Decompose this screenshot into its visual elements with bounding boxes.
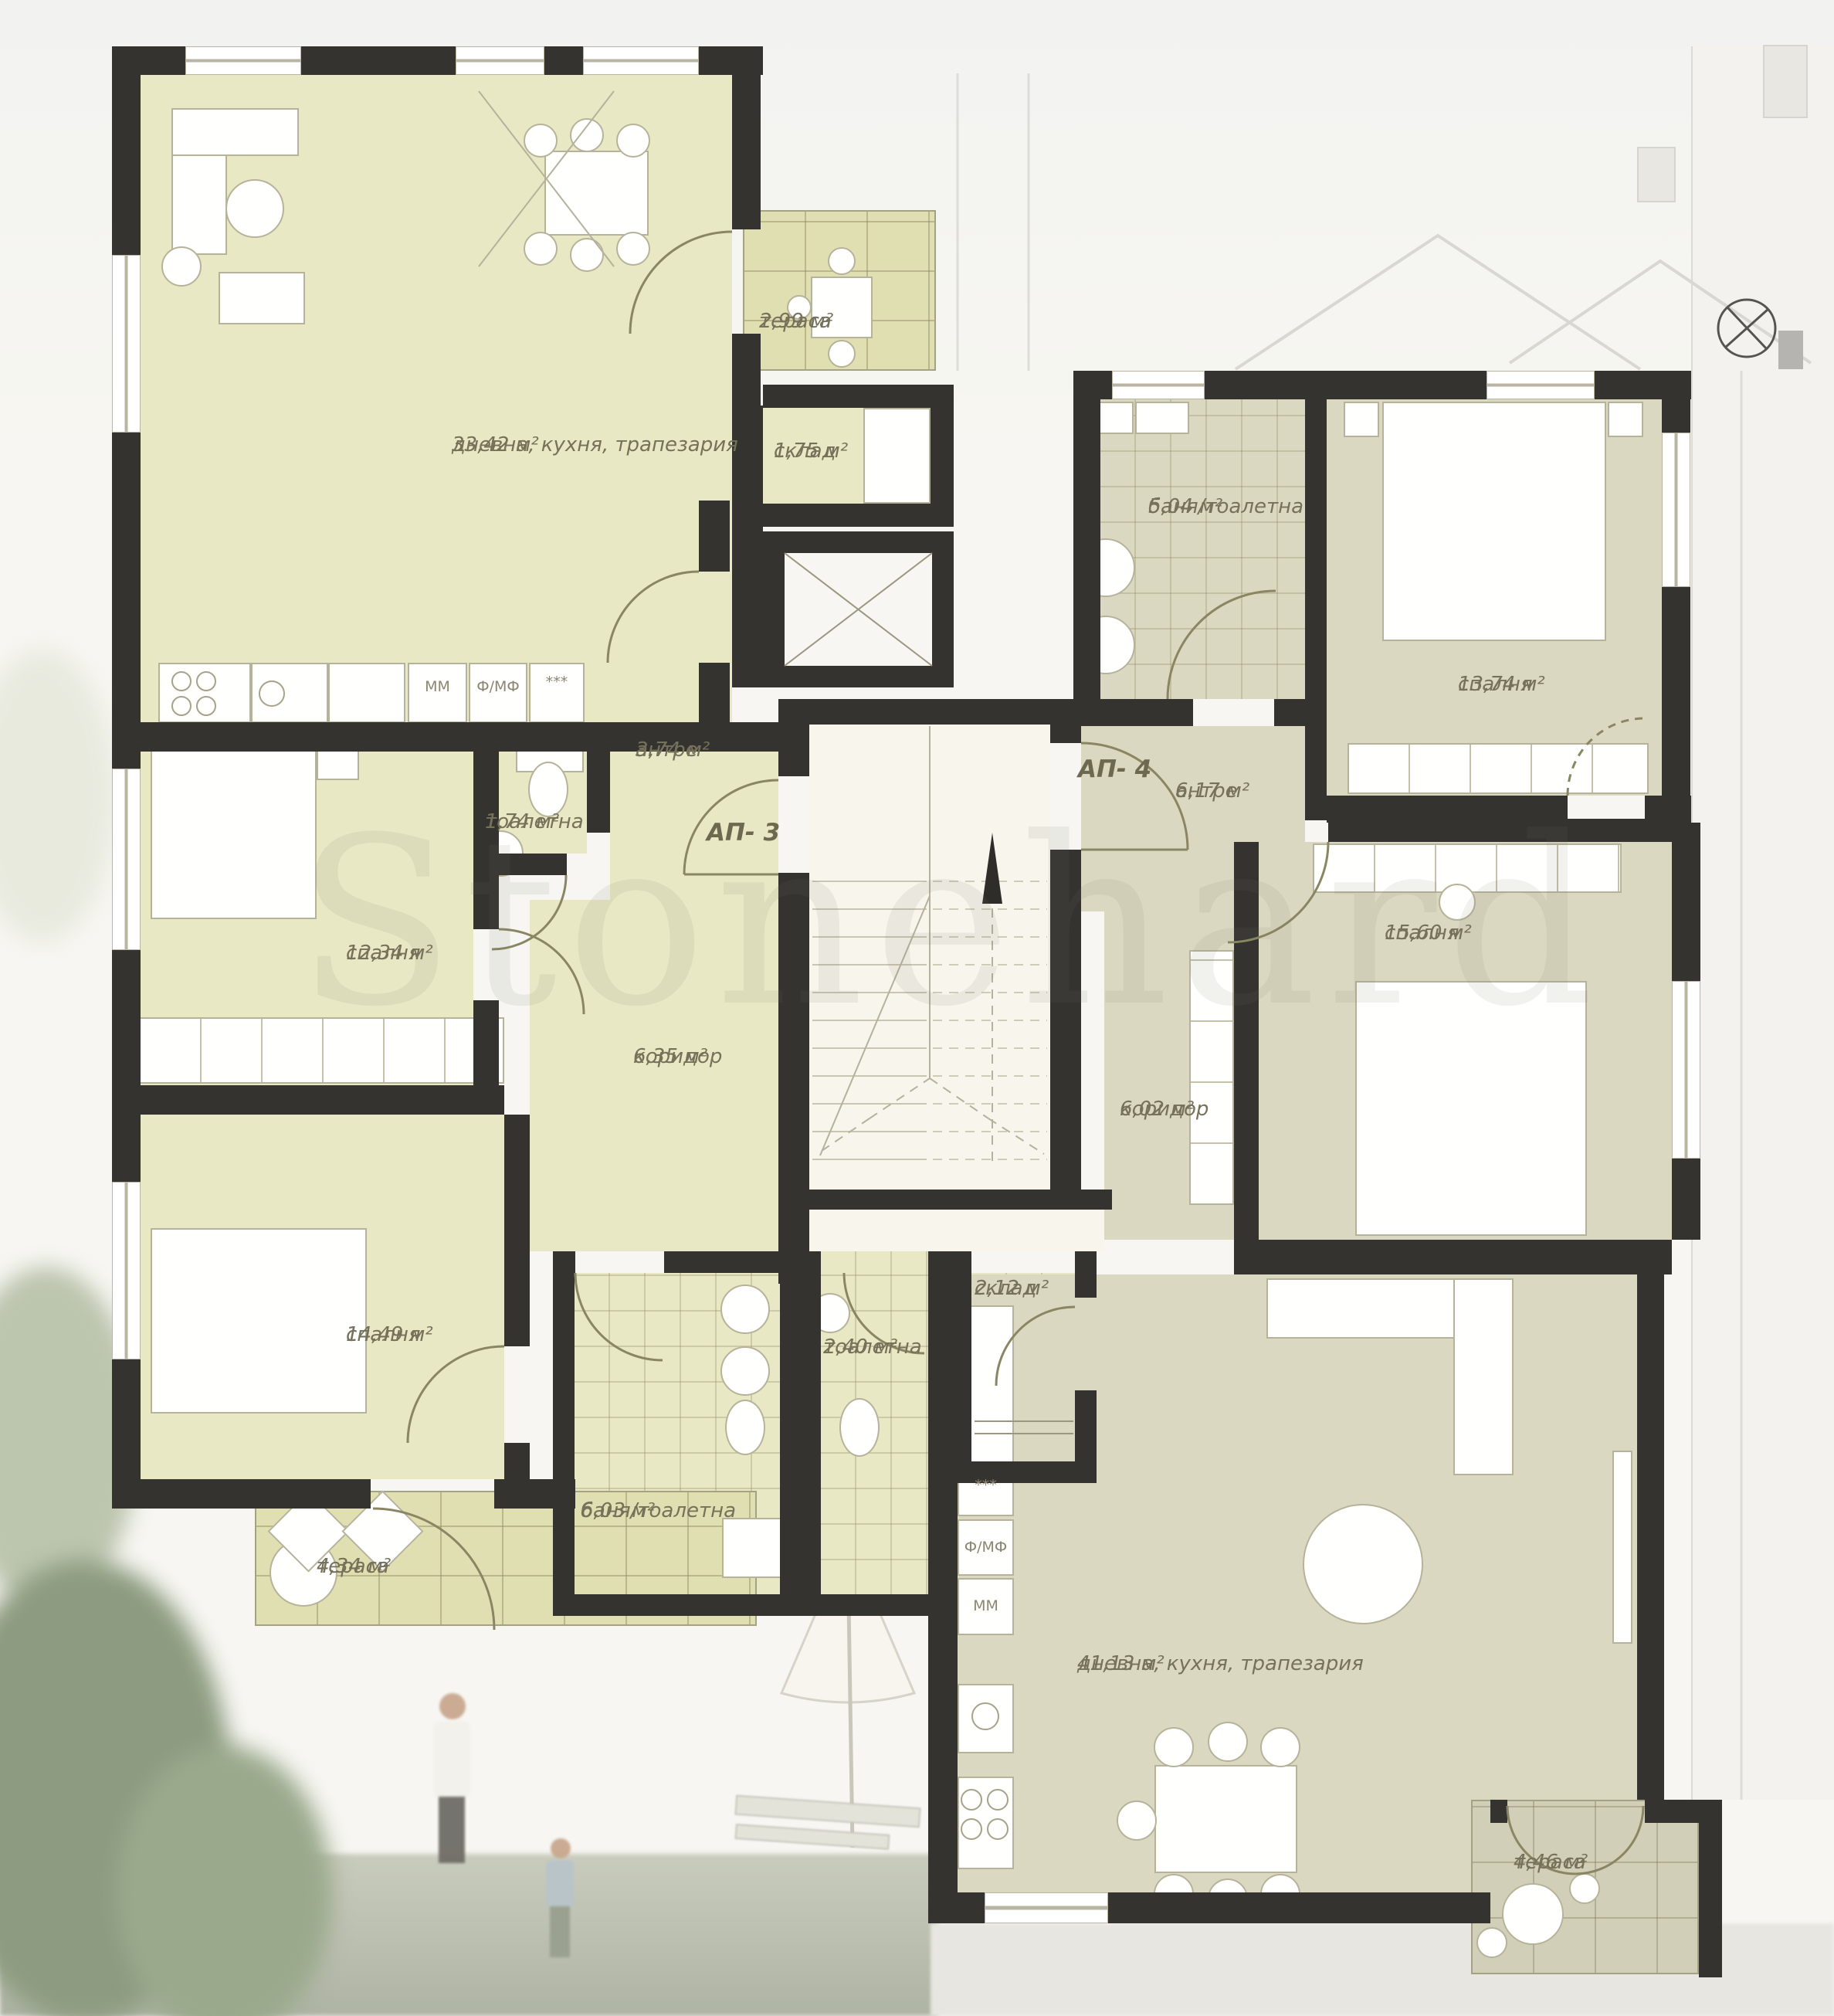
wardrobe-cross-icon xyxy=(479,91,614,266)
elevator-x-icon xyxy=(785,553,932,666)
plan-symbols xyxy=(0,0,1834,2016)
kitchen-appliance-label: ММ xyxy=(958,1597,1014,1614)
kitchen-appliance-label: Ф/МФ xyxy=(469,678,527,695)
staircase-treads xyxy=(812,726,1047,1161)
up-arrow-icon xyxy=(982,833,1002,904)
apartment-label-ap3: АП- 3 xyxy=(707,819,780,847)
apartment-label-ap4: АП- 4 xyxy=(1078,755,1151,783)
kitchen-appliance-label: Ф/МФ xyxy=(958,1539,1014,1556)
kitchen-appliance-label: *** xyxy=(529,674,585,691)
storage-shelf-lines xyxy=(975,1421,1073,1434)
kitchen-appliance-label: ММ xyxy=(408,678,467,695)
compass-icon xyxy=(1718,300,1775,357)
kitchen-appliance-label: *** xyxy=(958,1477,1014,1494)
floor-plan-page: дневна, кухня, трапезария 33,42 м² терас… xyxy=(0,0,1834,2016)
